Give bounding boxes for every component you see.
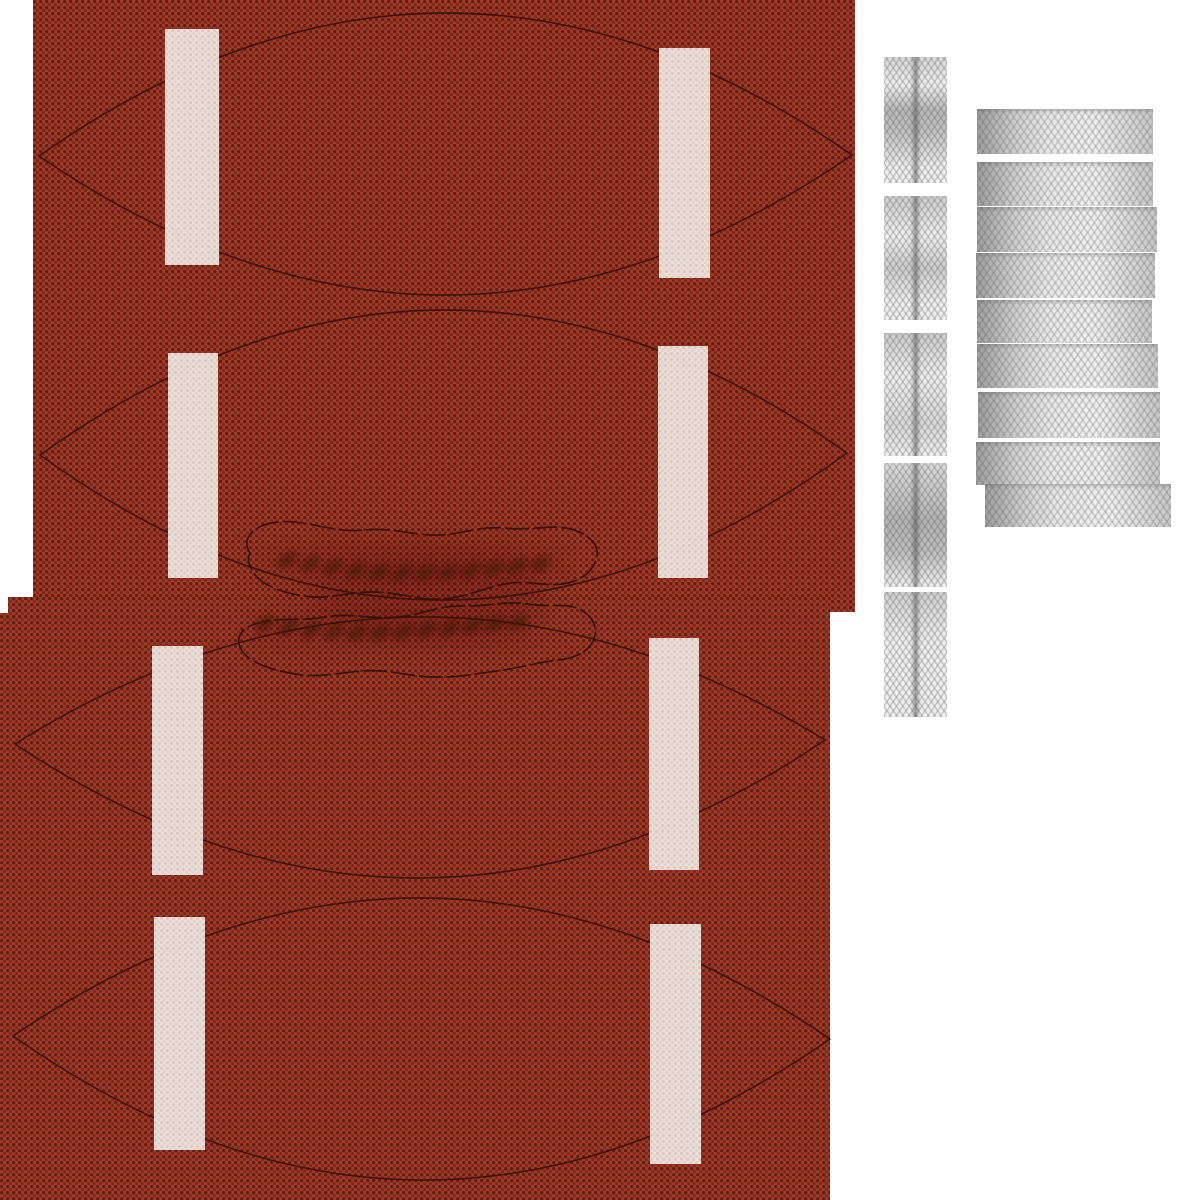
lace-swatch-horizontal-7 [978,392,1160,438]
white-stripe-panel3-left [152,646,203,875]
football-texture-atlas [0,0,1200,1200]
lace-swatch-horizontal-8 [976,442,1160,485]
white-stripe-panel1-right [659,48,710,278]
lace-swatch-horizontal-2 [977,162,1153,206]
leather-sheet-lower [0,597,830,1200]
lace-swatch-horizontal-3 [977,207,1157,252]
lace-swatch-horizontal-9 [985,484,1171,527]
white-stripe-panel2-right [658,346,708,578]
white-stripe-panel4-right [650,924,701,1164]
white-stripe-panel4-left [154,917,205,1150]
lace-swatch-vertical-3 [884,333,947,456]
lace-swatch-vertical-2 [884,196,947,320]
white-stripe-panel3-right [649,638,699,870]
lace-swatch-horizontal-5 [977,300,1152,343]
lace-swatch-vertical-1 [884,57,947,183]
lace-swatch-horizontal-4 [976,253,1155,298]
lace-swatch-horizontal-1 [977,109,1153,154]
white-stripe-panel2-left [168,353,218,578]
lace-swatch-vertical-4 [884,463,947,587]
lace-swatch-horizontal-6 [977,344,1158,388]
lace-swatch-vertical-5 [884,592,947,717]
white-stripe-panel1-left [165,29,219,265]
leather-sheet-upper [33,0,855,612]
